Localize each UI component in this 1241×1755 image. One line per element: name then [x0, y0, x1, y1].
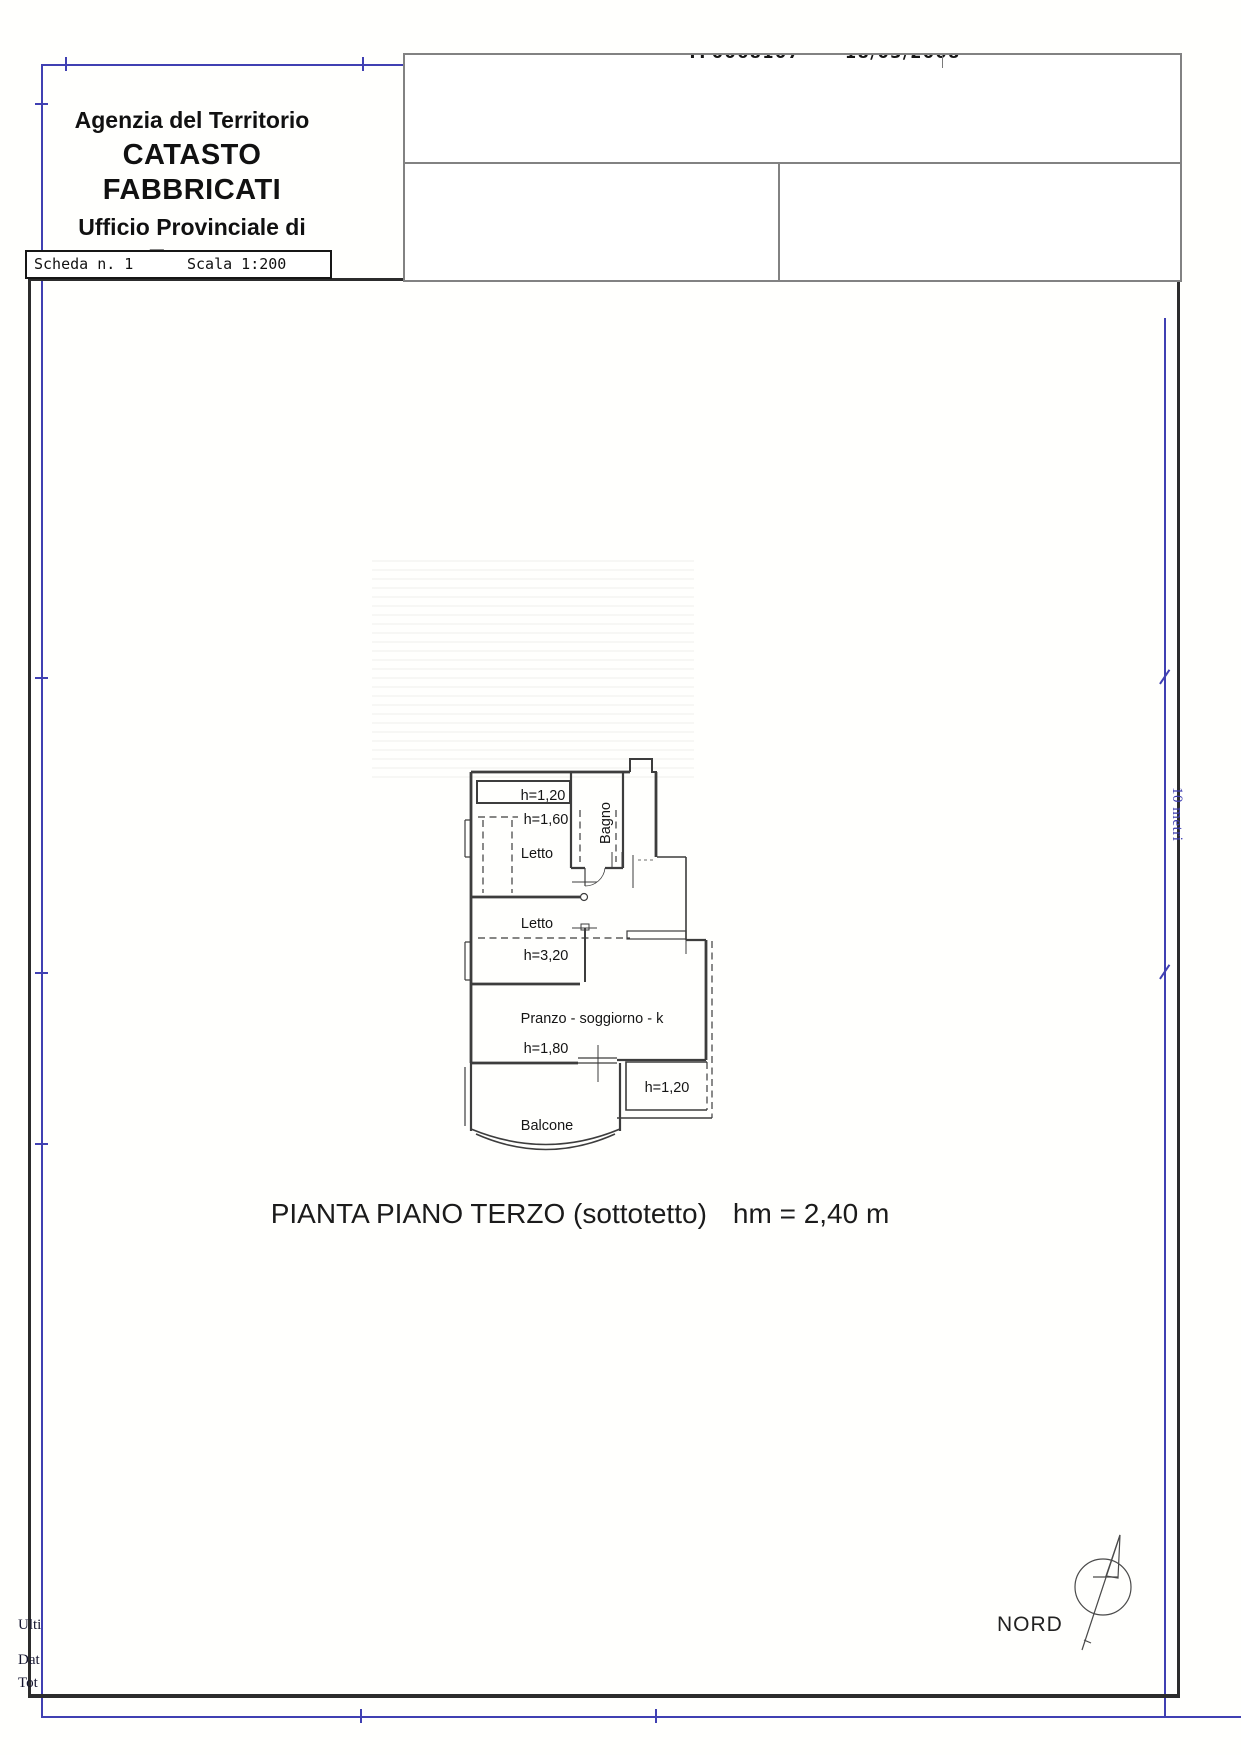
plan-caption: PIANTA PIANO TERZO (sottotetto)hm = 2,40… [265, 1198, 895, 1230]
height-line-letto1 [483, 820, 512, 893]
agency-name: Agenzia del Territorio [36, 106, 348, 134]
bagno-door-swing [585, 868, 605, 886]
label-strip-height: h=1,20 [521, 788, 566, 804]
stamp-box-divider-v [778, 164, 780, 282]
sheet-scale: Scala 1:200 [187, 252, 286, 277]
label-living: Pranzo - soggiorno - k [521, 1011, 664, 1027]
balcony-curve-inner [476, 1134, 615, 1150]
label-terrace-height: h=1,20 [645, 1080, 690, 1096]
wall-notch [630, 759, 657, 772]
caption-height: hm = 2,40 m [733, 1198, 889, 1229]
scale-bar-label: 10 metri [1168, 787, 1185, 863]
floor-plan: h=1,20 h=1,60 Letto Bagno Letto h=3,20 P… [450, 745, 725, 1175]
cadastral-sheet-page: Agenzia del Territorio CATASTO FABBRICAT… [0, 0, 1241, 1755]
plot-frame-bottom-line [41, 1716, 1241, 1718]
footer-fragment-2: Dat [18, 1652, 40, 1669]
caption-title: PIANTA PIANO TERZO (sottotetto) [271, 1198, 707, 1229]
sheet-info-bar: Scheda n. 1 Scala 1:200 [25, 250, 332, 279]
registry-title: CATASTO FABBRICATI [36, 138, 348, 209]
footer-fragment-3: Tot [18, 1675, 38, 1692]
label-letto2: Letto [521, 916, 553, 932]
stamp-box-divider-h [403, 162, 1182, 164]
north-compass-icon [1055, 1515, 1155, 1660]
clipped-protocol-code: TF0068107 [687, 55, 822, 64]
stair-hatch [612, 852, 622, 868]
compass-arrowhead [1106, 1535, 1120, 1578]
frame-tick [65, 57, 67, 71]
clipped-protocol-date: 18/03/2008 [845, 55, 965, 64]
office-line: Ufficio Provinciale di [36, 213, 348, 241]
stamp-box-cell-line [942, 55, 943, 68]
frame-tick [35, 103, 48, 105]
wall-landing [657, 857, 686, 940]
label-bagno: Bagno [598, 802, 614, 844]
door-knob [581, 894, 588, 901]
frame-tick [655, 1709, 657, 1723]
frame-tick [360, 1709, 362, 1723]
stamp-box: TF0068107 18/03/2008 [403, 53, 1182, 282]
label-letto1: Letto [521, 846, 553, 862]
document-header: Agenzia del Territorio CATASTO FABBRICAT… [36, 106, 348, 273]
north-label: NORD [997, 1613, 1063, 1637]
label-living-height: h=1,80 [524, 1041, 569, 1057]
door-swing-marks [572, 882, 597, 928]
entry-step [627, 931, 686, 939]
sheet-number: Scheda n. 1 [34, 252, 133, 277]
label-letto2-height: h=3,20 [524, 948, 569, 964]
plot-frame-top-line [41, 64, 413, 66]
label-letto1-height: h=1,60 [524, 812, 569, 828]
frame-tick [362, 57, 364, 71]
label-balcone: Balcone [521, 1118, 573, 1134]
footer-fragment-1: Ulti [18, 1617, 41, 1634]
